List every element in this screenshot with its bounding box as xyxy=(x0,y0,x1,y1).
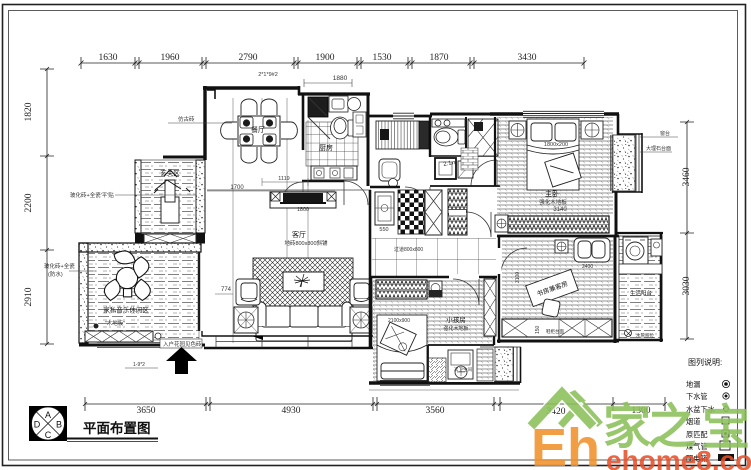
svg-text:150: 150 xyxy=(535,325,541,334)
svg-text:过道800x800: 过道800x800 xyxy=(394,246,423,253)
svg-text:2200: 2200 xyxy=(24,193,34,212)
svg-text:2*1*9#2: 2*1*9#2 xyxy=(258,72,278,78)
svg-text:3460: 3460 xyxy=(682,167,692,186)
svg-text:次卫生间: 次卫生间 xyxy=(454,366,472,373)
svg-text:玻化砖+全瓷'平'贴: 玻化砖+全瓷'平'贴 xyxy=(70,191,114,199)
svg-text:1-9*2: 1-9*2 xyxy=(133,362,145,368)
svg-text:4930: 4930 xyxy=(282,406,301,416)
svg-text:大理石台面: 大理石台面 xyxy=(646,145,671,152)
svg-text:图列说明:: 图列说明: xyxy=(688,357,722,367)
svg-text:强化木地板: 强化木地板 xyxy=(443,325,468,332)
svg-text:客厅: 客厅 xyxy=(292,230,306,239)
svg-text:1960: 1960 xyxy=(161,53,180,63)
svg-text:3140: 3140 xyxy=(553,207,567,213)
svg-text:厨房: 厨房 xyxy=(319,143,333,152)
svg-text:B: B xyxy=(56,420,62,430)
svg-text:1820: 1820 xyxy=(24,102,34,121)
svg-text:家私音乐休闲区: 家私音乐休闲区 xyxy=(103,305,149,314)
svg-text:主卧: 主卧 xyxy=(545,189,559,198)
svg-text:2790: 2790 xyxy=(239,53,258,63)
svg-text:C: C xyxy=(45,430,52,440)
svg-text:餐厅: 餐厅 xyxy=(251,125,265,134)
svg-text:1880: 1880 xyxy=(333,75,348,82)
svg-text:下水管: 下水管 xyxy=(686,392,708,401)
svg-text:ehome8.com: ehome8.com xyxy=(606,445,751,470)
svg-text:平面布置图: 平面布置图 xyxy=(83,420,151,436)
svg-text:3030: 3030 xyxy=(682,276,692,295)
svg-text:生活阳台: 生活阳台 xyxy=(630,289,653,297)
svg-text:地砖800x800斜铺: 地砖800x800斜铺 xyxy=(284,239,328,247)
svg-text:Eh: Eh xyxy=(531,418,600,470)
svg-text:2910: 2910 xyxy=(24,287,34,306)
svg-text:3650: 3650 xyxy=(137,406,156,416)
svg-text:D: D xyxy=(34,420,41,430)
svg-text:小孩房: 小孩房 xyxy=(446,315,466,324)
svg-text:1530: 1530 xyxy=(373,53,392,63)
svg-text:A: A xyxy=(45,410,51,420)
svg-text:2100x900: 2100x900 xyxy=(388,318,410,324)
svg-text:550: 550 xyxy=(379,227,388,233)
svg-text:3100: 3100 xyxy=(515,272,521,283)
svg-text:2400: 2400 xyxy=(582,264,593,270)
svg-text:3560: 3560 xyxy=(426,406,445,416)
svg-text:窗台: 窗台 xyxy=(660,130,670,137)
svg-text:强化木地板: 强化木地板 xyxy=(539,198,567,206)
svg-text:地漏: 地漏 xyxy=(686,380,700,389)
svg-text:"木地板": "木地板" xyxy=(105,319,125,327)
svg-text:1900: 1900 xyxy=(316,53,335,63)
svg-text:1870: 1870 xyxy=(430,53,449,63)
svg-text:入户花园见色砖: 入户花园见色砖 xyxy=(163,340,202,348)
svg-text:玻化砖+全瓷: 玻化砖+全瓷 xyxy=(44,262,75,270)
svg-text:水管移位: 水管移位 xyxy=(636,332,654,339)
svg-text:1119: 1119 xyxy=(278,176,289,182)
svg-text:(防水): (防水) xyxy=(48,270,63,278)
svg-text:1800x200: 1800x200 xyxy=(544,142,568,148)
svg-text:774: 774 xyxy=(221,287,232,293)
svg-text:1630: 1630 xyxy=(99,53,118,63)
svg-text:仿古砖: 仿古砖 xyxy=(178,115,195,123)
svg-text:1800: 1800 xyxy=(297,207,309,213)
svg-text:玄关区: 玄关区 xyxy=(160,168,180,177)
svg-text:3430: 3430 xyxy=(518,53,537,63)
svg-text:鞋柜台面: 鞋柜台面 xyxy=(546,328,564,335)
